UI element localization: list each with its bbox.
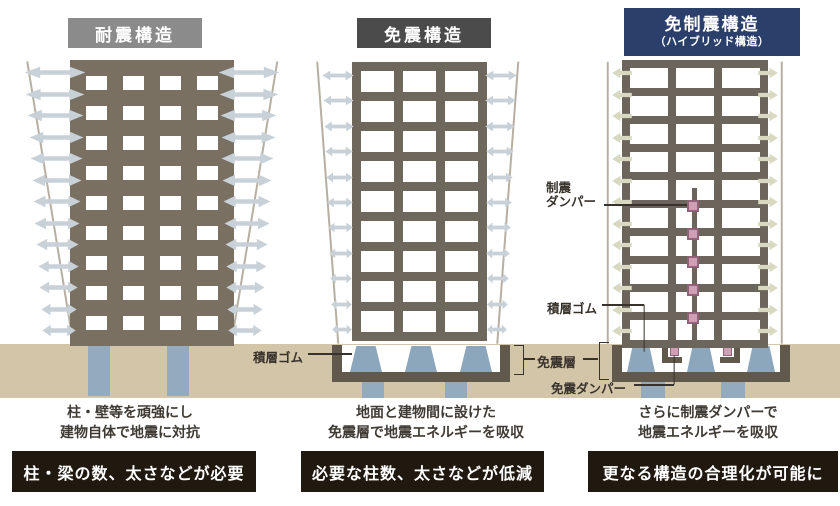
sway-line-menshin-left [316,62,338,344]
seismic-arrow-menshin-left [324,119,354,130]
caption-menshin-line1: 地面と建物間に設けた [300,403,552,423]
seismic-arrow-menshin-right [486,170,513,181]
caption-taishin-line1: 柱・壁等を頑強にし [10,403,250,423]
header-taishin: 耐震構造 [68,18,202,48]
label-sekisou-gomu-menshin: 積層ゴム [253,347,303,366]
seismic-arrow-menshin-right [485,119,515,130]
sway-line-taishin-right [230,62,277,344]
sway-line-menshin-right [496,62,518,344]
seismic-arrow-menshin-right [485,68,517,79]
seismic-arrow-menshin-right [487,271,509,282]
building-taishin-frame [70,60,234,346]
seismic-arrow-menshin-left [328,220,353,231]
isolation-gap-menshin [342,345,500,372]
header-taishin-title: 耐震構造 [95,21,175,46]
diagram-stage: 制震 ダンパー 積層ゴム 積層ゴム 免震層 免震ダンパー 耐震構造 免震構造 免… [0,0,840,506]
building-hybrid-frame [622,60,768,348]
foundation-slab-menshin [332,372,510,382]
label-seishin-damper-line1: 制震 [546,181,608,195]
label-seishin-damper-line2: ダンパー [546,195,608,209]
label-menshin-sou: 免震層 [537,352,576,371]
header-menshin: 免震構造 [357,18,491,48]
caption-taishin: 柱・壁等を頑強にし 建物自体で地震に対抗 [10,403,250,442]
seismic-arrow-menshin-right [487,322,507,333]
verdict-hybrid: 更なる構造の合理化が可能に [588,451,838,492]
seismic-arrow-menshin-right [485,93,516,104]
label-sekisou-gomu-hybrid: 積層ゴム [547,298,597,317]
sway-line-taishin-left [26,62,73,344]
seismic-arrow-menshin-right [486,246,510,257]
header-hybrid-subtitle: （ハイブリッド構造） [655,36,770,49]
header-hybrid: 免制震構造 （ハイブリッド構造） [624,8,800,56]
envelope-line-hybrid-right [781,62,783,344]
header-menshin-title: 免震構造 [384,21,464,46]
seismic-arrow-menshin-right [486,144,514,155]
caption-menshin-line2: 免震層で地震エネルギーを吸収 [300,423,552,443]
caption-hybrid-line2: 地震エネルギーを吸収 [586,423,830,443]
caption-hybrid: さらに制震ダンパーで 地震エネルギーを吸収 [586,403,830,442]
seismic-arrow-menshin-left [322,68,354,79]
seismic-arrow-menshin-right [486,195,512,206]
label-seishin-damper: 制震 ダンパー [546,181,608,209]
caption-hybrid-line1: さらに制震ダンパーで [586,403,830,423]
seismic-arrow-menshin-left [331,297,352,308]
seismic-arrow-menshin-left [330,271,352,282]
verdict-menshin: 必要な柱数、太さなどが低減 [301,451,544,492]
seismic-arrow-menshin-left [325,144,353,155]
caption-menshin: 地面と建物間に設けた 免震層で地震エネルギーを吸収 [300,403,552,442]
caption-taishin-line2: 建物自体で地震に対抗 [10,423,250,443]
seismic-arrow-menshin-right [486,220,511,231]
foundation-slab-hybrid [612,372,790,382]
isolation-gap-hybrid [622,345,780,372]
seismic-arrow-menshin-left [329,246,353,257]
seismic-arrow-menshin-right [487,297,508,308]
verdict-taishin: 柱・梁の数、太さなどが必要 [12,451,256,492]
seismic-arrow-menshin-left [323,93,354,104]
label-menshin-damper: 免震ダンパー [551,378,626,397]
seismic-arrow-menshin-left [327,195,353,206]
seismic-arrow-menshin-left [332,322,352,333]
seismic-arrow-menshin-left [326,170,353,181]
bracket-menshin-layer-right [599,342,609,380]
building-menshin-frame [352,62,487,341]
bracket-menshin-layer-left [514,345,524,375]
header-hybrid-title: 免制震構造 [665,15,760,35]
